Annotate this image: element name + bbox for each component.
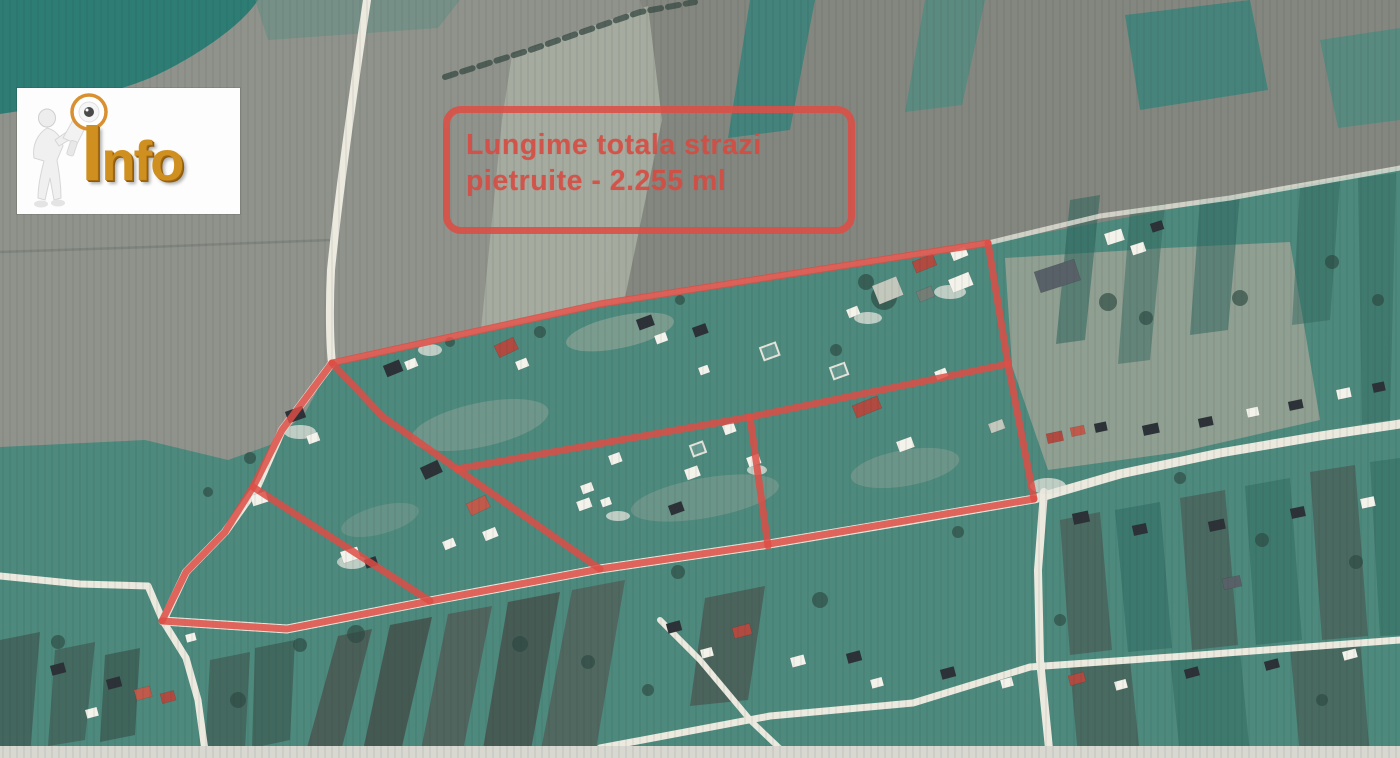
aerial-map-viewport: Lungime totala strazi pietruite - 2.255 …	[0, 0, 1400, 758]
info-logo-text: Info	[81, 110, 182, 204]
total-length-callout: Lungime totala strazi pietruite - 2.255 …	[443, 106, 855, 234]
callout-line-1: Lungime totala strazi	[466, 127, 848, 163]
info-logo: Info	[17, 88, 240, 214]
callout-line-2: pietruite - 2.255 ml	[466, 163, 848, 199]
